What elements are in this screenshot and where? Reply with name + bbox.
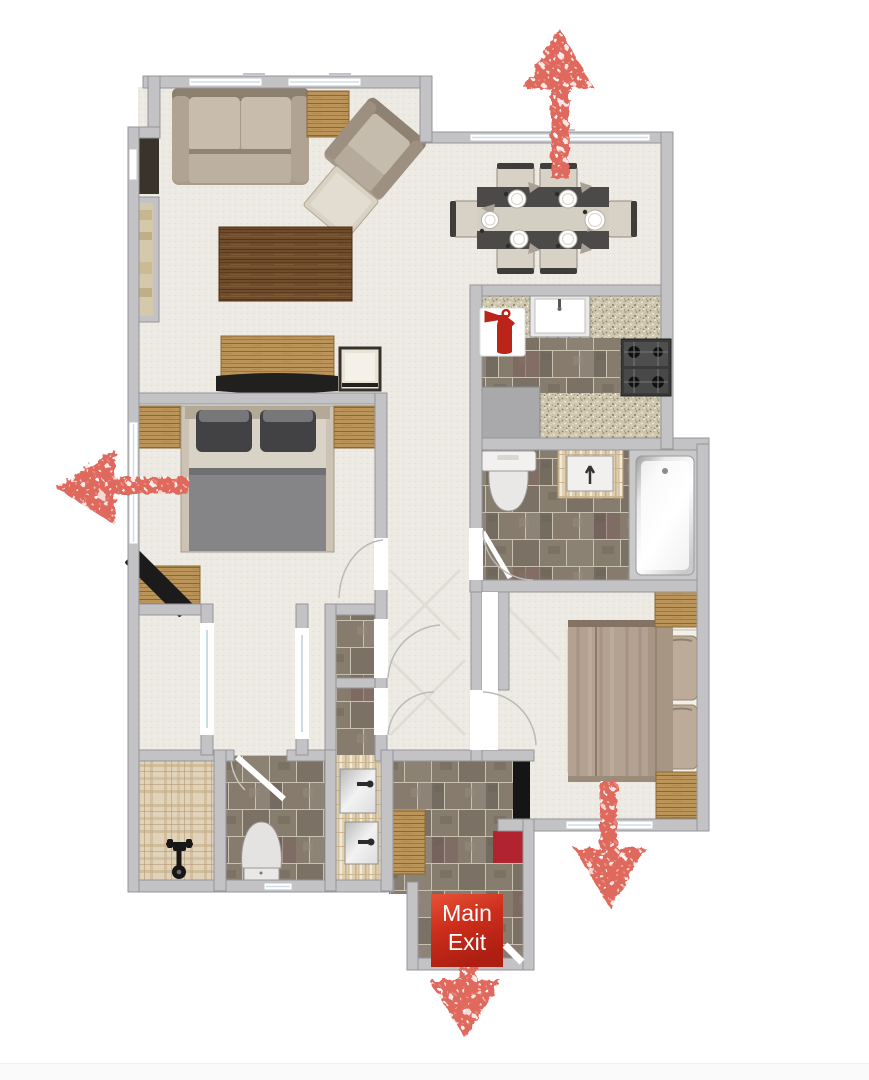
- svg-text:Exit: Exit: [448, 929, 487, 955]
- svg-text:Main: Main: [442, 900, 492, 926]
